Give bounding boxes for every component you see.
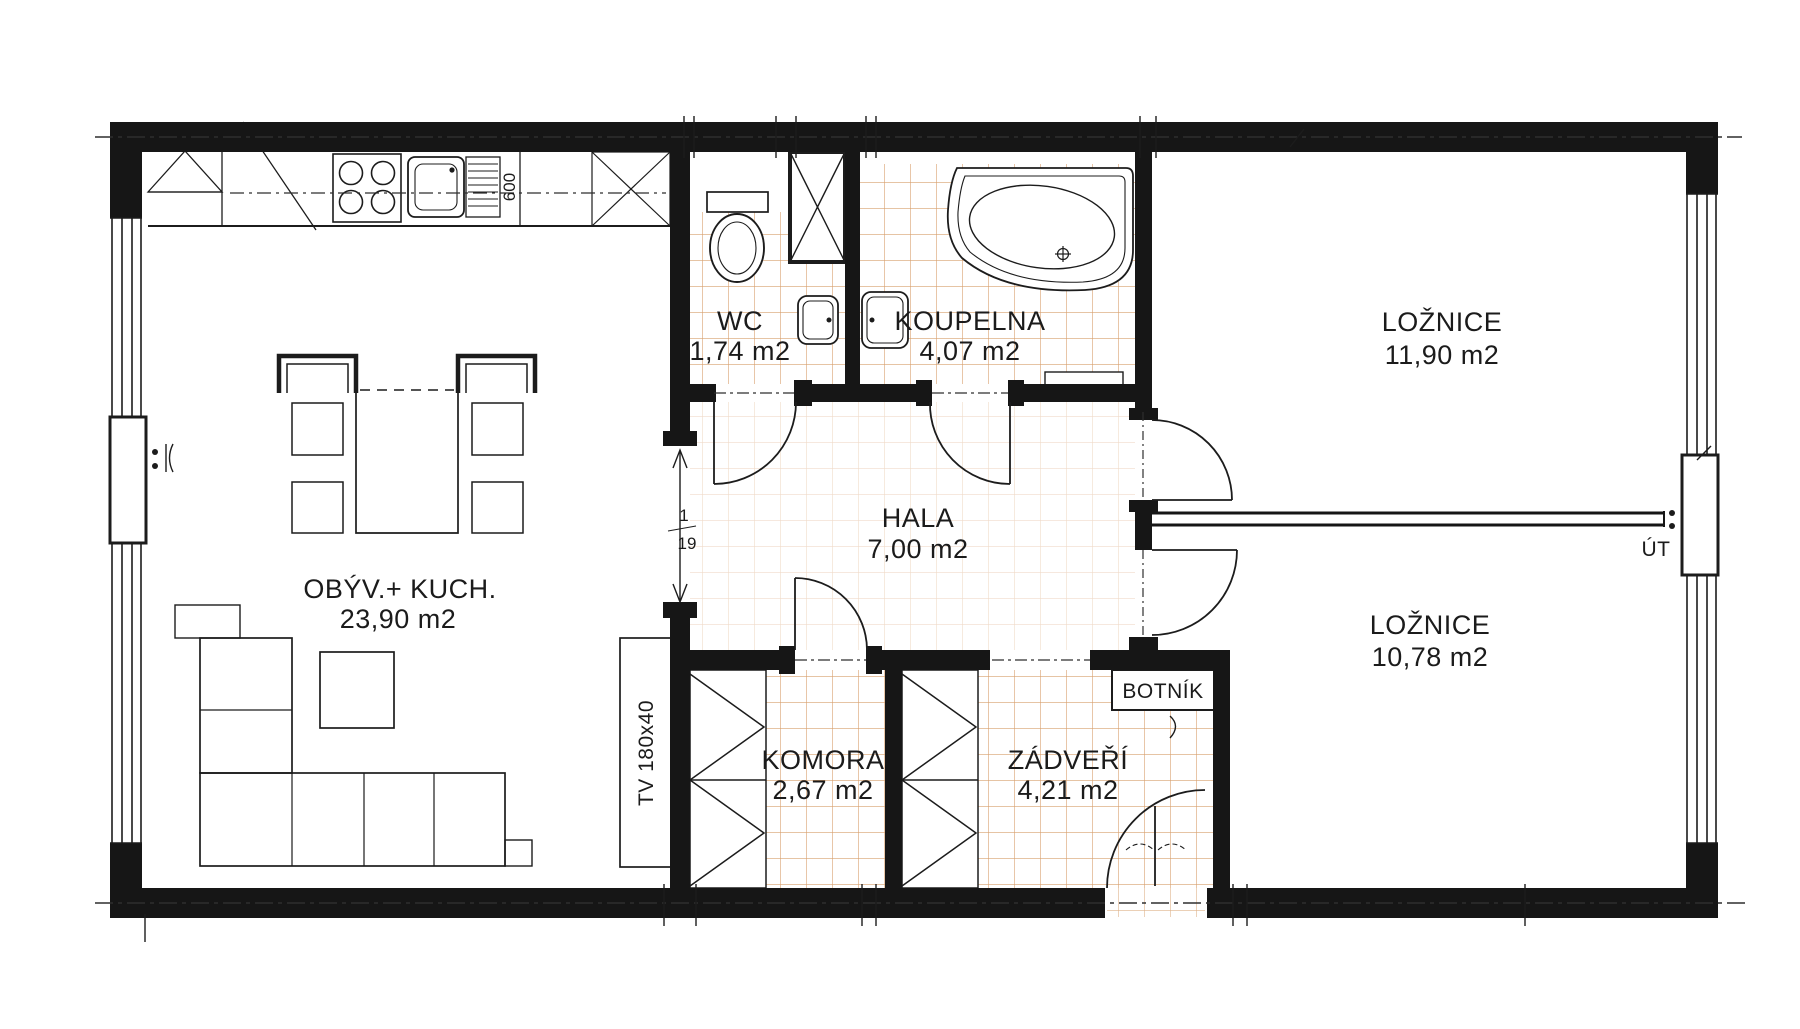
kitchen-sink-icon bbox=[408, 157, 464, 217]
kitchen-module-label: 600 bbox=[500, 173, 519, 201]
corner-cabinet-icon bbox=[148, 151, 222, 192]
heating-label: ÚT bbox=[1642, 538, 1671, 561]
dining-chair-icon bbox=[292, 482, 343, 533]
bedroom-bottom-door bbox=[1152, 550, 1237, 635]
radiator-icon bbox=[152, 444, 173, 472]
floor-plan-page: OBÝV.+ KUCH. 23,90 m2 WC 1,74 m2 KOUPELN… bbox=[0, 0, 1800, 1029]
room-label-closet: KOMORA bbox=[761, 745, 884, 775]
heating-pipes-icon bbox=[1669, 510, 1675, 529]
dining-chair-icon bbox=[472, 403, 523, 455]
vestibule-wardrobe-icon bbox=[902, 670, 978, 888]
opening-dim-upper: 1 bbox=[679, 506, 688, 525]
dining-chair-icon bbox=[472, 482, 523, 533]
dining-table bbox=[356, 390, 458, 533]
closet-wardrobe-icon bbox=[690, 670, 766, 888]
wall-left-bottom bbox=[110, 843, 142, 918]
room-area-vestibule: 4,21 m2 bbox=[1017, 775, 1118, 805]
wall-right-bottom bbox=[1686, 843, 1718, 918]
pier-left bbox=[110, 417, 146, 543]
opening-dim-lower: 19 bbox=[678, 534, 697, 553]
dish-drainer-icon bbox=[466, 157, 500, 217]
wall-right-top bbox=[1686, 122, 1718, 194]
dining-chair-icon bbox=[279, 356, 356, 393]
stove-icon bbox=[333, 154, 401, 222]
room-area-closet: 2,67 m2 bbox=[772, 775, 873, 805]
shaft-icon bbox=[790, 152, 845, 262]
room-area-bathroom: 4,07 m2 bbox=[919, 336, 1020, 366]
bath-shelf bbox=[1045, 372, 1123, 385]
coffee-table bbox=[320, 652, 394, 728]
wc-washbasin-icon bbox=[798, 296, 838, 344]
shoe-cabinet-label: BOTNÍK bbox=[1122, 680, 1203, 703]
room-label-vestibule: ZÁDVEŘÍ bbox=[1008, 744, 1129, 775]
sofa bbox=[175, 605, 532, 866]
bedroom-partition-wall bbox=[1152, 511, 1664, 527]
dining-chair-icon bbox=[292, 403, 343, 455]
room-label-bedroom-bottom: LOŽNICE bbox=[1370, 609, 1491, 640]
floor-plan-svg: OBÝV.+ KUCH. 23,90 m2 WC 1,74 m2 KOUPELN… bbox=[0, 0, 1800, 1029]
window-left-lower bbox=[110, 543, 142, 843]
dining-chair-icon bbox=[458, 356, 535, 393]
room-label-wc: WC bbox=[717, 306, 763, 336]
room-area-living-kitchen: 23,90 m2 bbox=[340, 604, 457, 634]
dining-set bbox=[279, 356, 535, 533]
tall-cabinet-icon bbox=[592, 152, 670, 226]
room-label-bedroom-top: LOŽNICE bbox=[1382, 306, 1503, 337]
window-left-upper bbox=[110, 218, 142, 417]
room-area-bedroom-bottom: 10,78 m2 bbox=[1372, 642, 1489, 672]
pier-right bbox=[1682, 455, 1718, 575]
room-label-hall: HALA bbox=[882, 503, 955, 533]
tv-unit-label: TV 180x40 bbox=[635, 700, 658, 806]
room-area-wc: 1,74 m2 bbox=[689, 336, 790, 366]
window-right-lower bbox=[1686, 575, 1718, 843]
toilet-icon bbox=[707, 192, 768, 282]
window-right-upper bbox=[1686, 194, 1718, 455]
room-label-bathroom: KOUPELNA bbox=[894, 306, 1045, 336]
room-area-hall: 7,00 m2 bbox=[867, 534, 968, 564]
room-label-living-kitchen: OBÝV.+ KUCH. bbox=[303, 574, 496, 604]
room-area-bedroom-top: 11,90 m2 bbox=[1385, 340, 1500, 370]
bedroom-top-door bbox=[1152, 420, 1232, 500]
